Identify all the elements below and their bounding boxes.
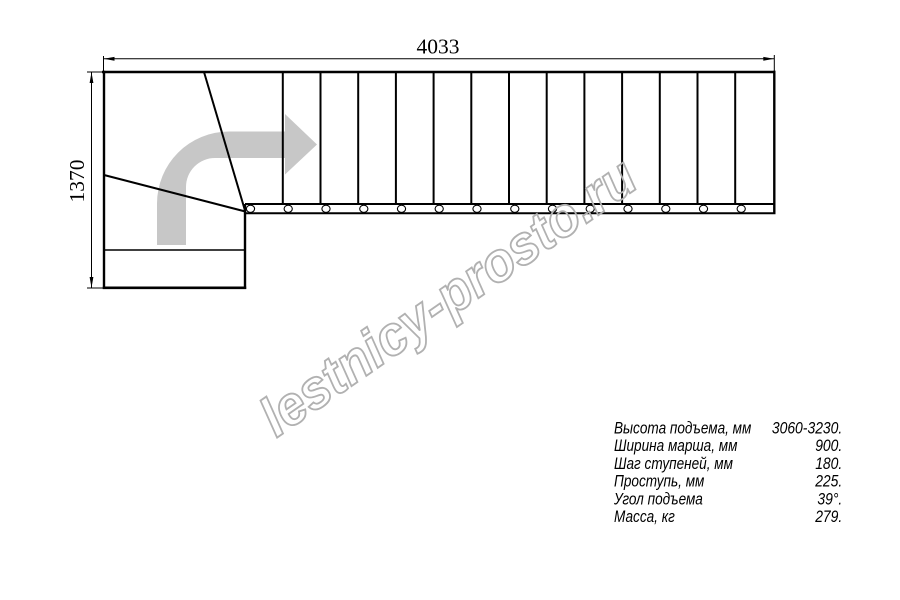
svg-text:1370: 1370 [65, 160, 89, 203]
svg-text:Проступь, мм: Проступь, мм [614, 472, 705, 491]
svg-text:lestnicy-prosto.ru: lestnicy-prosto.ru [248, 145, 648, 448]
svg-text:39°.: 39°. [817, 490, 842, 509]
svg-text:Шаг ступеней, мм: Шаг ступеней, мм [614, 455, 733, 474]
svg-text:Высота подъема, мм: Высота подъема, мм [614, 419, 752, 438]
svg-text:Масса, кг: Масса, кг [614, 508, 675, 527]
svg-text:180.: 180. [815, 455, 842, 474]
svg-text:225.: 225. [814, 472, 842, 491]
svg-text:3060-3230.: 3060-3230. [772, 419, 842, 438]
svg-text:900.: 900. [815, 437, 842, 456]
svg-text:Ширина марша, мм: Ширина марша, мм [614, 437, 738, 456]
svg-text:279.: 279. [814, 508, 842, 527]
svg-text:4033: 4033 [417, 35, 460, 59]
svg-text:Угол подъема: Угол подъема [613, 490, 703, 509]
